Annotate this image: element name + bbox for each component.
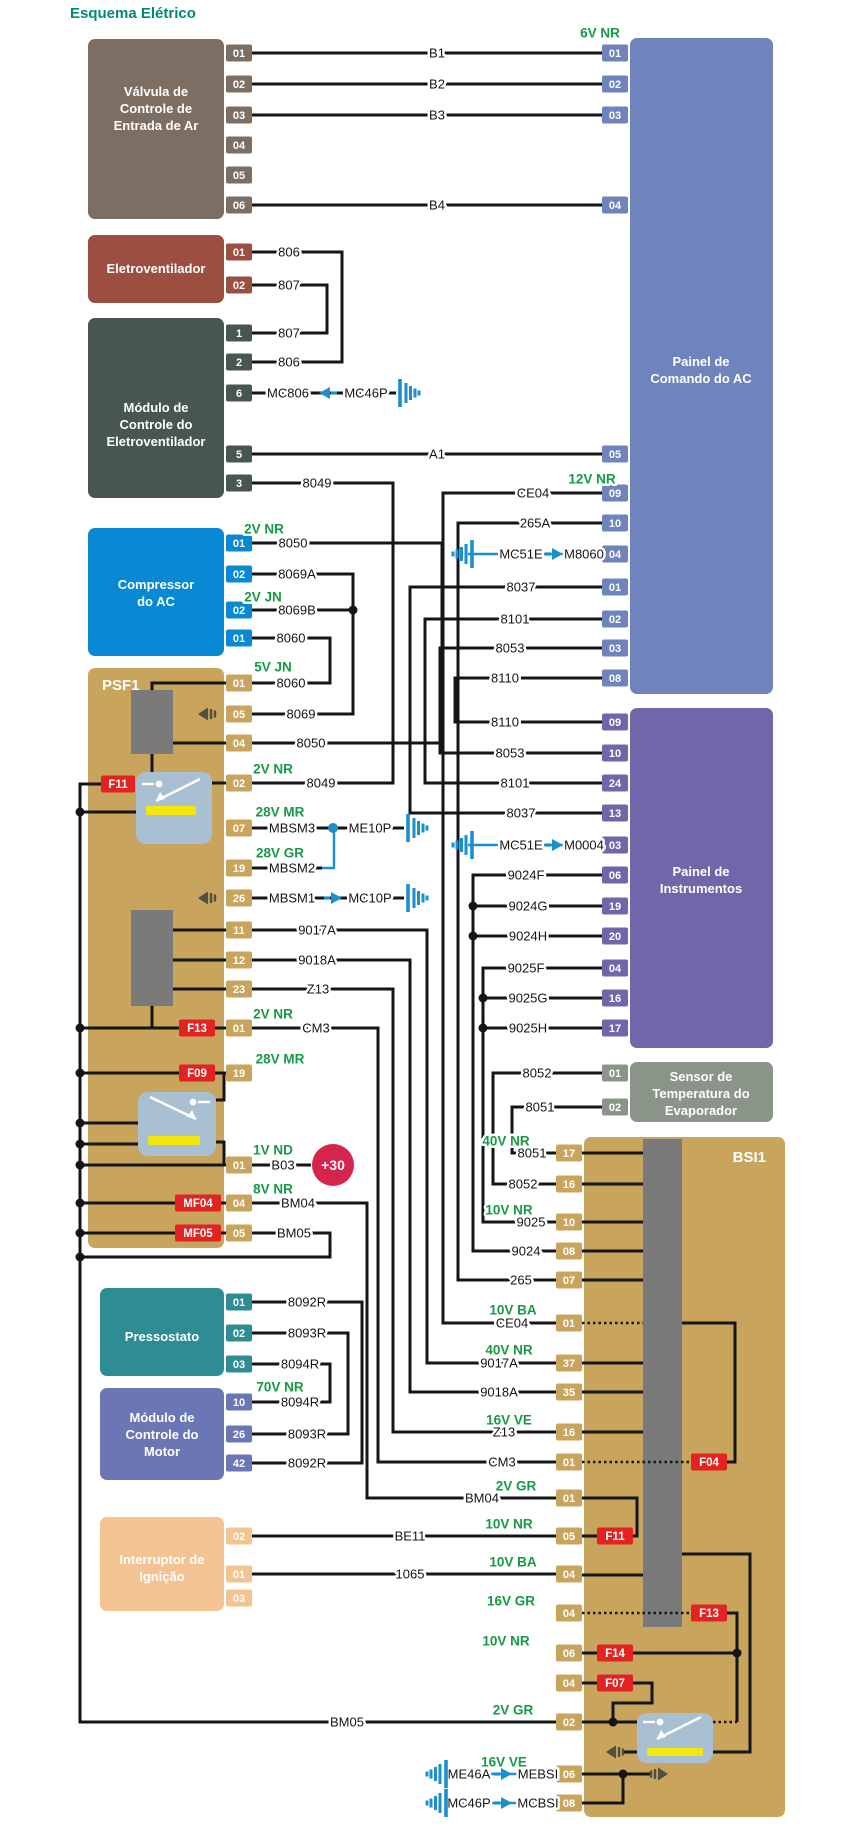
pin-number: 01 — [609, 48, 621, 60]
component-box-label: Eletroventilador — [107, 434, 206, 449]
wire-label: 8050 — [279, 536, 308, 551]
fuse-label: F11 — [605, 1531, 625, 1543]
splice-junction-dot — [328, 823, 338, 833]
pin-number: 03 — [233, 1359, 245, 1371]
flow-arrow-icon — [552, 839, 563, 851]
component-box-label: BSI1 — [733, 1149, 766, 1166]
pin-number: 01 — [233, 538, 245, 550]
wire-label: 8110 — [491, 715, 519, 730]
pin-number: 01 — [563, 1318, 575, 1330]
voltage-color-label: 28V MR — [256, 805, 305, 820]
component-box-label: Eletroventilador — [107, 261, 206, 276]
voltage-color-label: 10V NR — [482, 1634, 530, 1649]
pin-number: 03 — [233, 1593, 245, 1605]
pin-number: 05 — [609, 449, 621, 461]
wire-label: MC51E — [499, 547, 543, 562]
voltage-color-label: 16V VE — [481, 1755, 527, 1770]
ground-icon — [406, 884, 410, 912]
pin-number: 01 — [563, 1493, 575, 1505]
junction-dot — [76, 808, 85, 817]
ground-icon-bar — [434, 1796, 437, 1810]
pin-number: 01 — [233, 633, 245, 645]
wire-label: 8049 — [307, 776, 336, 791]
wire-label: MC51E — [499, 838, 543, 853]
ground-icon-bar — [417, 821, 420, 835]
wire-label: BE11 — [395, 1529, 426, 1544]
wire-label: CM3 — [302, 1021, 329, 1036]
fuse-label: F11 — [108, 779, 128, 791]
component-box-label: Entrada de Ar — [114, 118, 199, 133]
pin-number: 02 — [233, 605, 245, 617]
wire-label: CE04 — [517, 486, 550, 501]
shield-arrow-bar — [650, 1771, 652, 1778]
wire-label: CM3 — [488, 1455, 515, 1470]
ground-icon-bar — [418, 391, 421, 396]
pin-number: 16 — [563, 1179, 575, 1191]
wire-label: 8092R — [288, 1456, 326, 1471]
ground-icon-bar — [456, 550, 459, 559]
wire-label: 9017A — [480, 1356, 518, 1371]
ground-icon-bar — [465, 835, 468, 855]
wire-label: B03 — [271, 1158, 294, 1173]
voltage-color-label: 10V BA — [489, 1303, 537, 1318]
voltage-color-label: 12V NR — [568, 472, 616, 487]
wire-label: 8050 — [297, 736, 326, 751]
wire-label: CE04 — [496, 1316, 529, 1331]
ground-icon-bar — [456, 841, 459, 850]
pin-number: 01 — [563, 1457, 575, 1469]
component-box-label: Temperatura do — [652, 1086, 749, 1101]
voltage-color-label: 2V NR — [244, 522, 284, 537]
component-box-label: Válvula de — [124, 84, 188, 99]
junction-dot — [76, 1069, 85, 1078]
component-box-label: Compressor — [118, 577, 195, 592]
voltage-color-label: 5V JN — [254, 660, 292, 675]
relay-pivot-dot — [190, 1099, 197, 1106]
pin-number: 16 — [563, 1427, 575, 1439]
fuse-label: F07 — [605, 1678, 625, 1690]
fuse-label: F13 — [699, 1608, 719, 1620]
pin-number: 13 — [609, 808, 621, 820]
pin-number: 01 — [233, 678, 245, 690]
wire-label: 8069B — [278, 603, 316, 618]
pin-number: 06 — [609, 870, 621, 882]
flow-arrow-icon — [331, 892, 342, 904]
wire-label: Z13 — [307, 982, 329, 997]
pin-number: 09 — [609, 488, 621, 500]
ground-icon-bar — [422, 824, 425, 833]
component-box-label: Sensor de — [670, 1069, 733, 1084]
voltage-color-label: 10V NR — [485, 1517, 533, 1532]
ground-icon-bar — [426, 1801, 429, 1806]
pin-number: 04 — [233, 140, 246, 152]
wire-label: 8101 — [501, 612, 530, 627]
pin-number: 17 — [609, 1023, 621, 1035]
wire-label: 806 — [278, 355, 300, 370]
wire-label: 8037 — [507, 806, 536, 821]
wire-label: 9018A — [298, 953, 336, 968]
pin-number: 16 — [609, 993, 621, 1005]
pin-number: 6 — [236, 388, 242, 400]
junction-dot — [469, 932, 478, 941]
pin-number: 02 — [609, 79, 621, 91]
ground-icon-bar — [422, 894, 425, 903]
wire-label: MC46P — [344, 386, 387, 401]
component-box-label: Instrumentos — [660, 881, 742, 896]
component-box-label: Ignição — [139, 1569, 185, 1584]
pin-number: 04 — [609, 200, 622, 212]
pin-number: 42 — [233, 1458, 245, 1470]
shield-arrow-bar — [210, 893, 212, 903]
pin-number: 04 — [609, 549, 622, 561]
pin-number: 01 — [233, 1569, 245, 1581]
voltage-color-label: 16V VE — [486, 1413, 532, 1428]
shield-arrow-bar — [214, 895, 216, 902]
flow-arrow-icon — [501, 1797, 512, 1809]
ground-icon-bar — [430, 1799, 433, 1808]
pin-number: 5 — [236, 449, 242, 461]
wire-label: B2 — [429, 77, 445, 92]
pin-number: 06 — [563, 1769, 575, 1781]
flow-arrow-tail — [331, 391, 337, 394]
wire-label: MBSM2 — [269, 861, 315, 876]
voltage-color-label: 10V NR — [485, 1203, 533, 1218]
pin-number: 10 — [233, 1397, 245, 1409]
component-box-label: Comando do AC — [650, 371, 752, 386]
junction-dot — [76, 1119, 85, 1128]
junction-dot — [76, 1253, 85, 1262]
junction-dot — [479, 994, 488, 1003]
pin-number: 01 — [233, 1160, 245, 1172]
pin-number: 01 — [233, 48, 245, 60]
ground-icon-bar — [417, 891, 420, 905]
component-box-label: Motor — [144, 1444, 180, 1459]
wire-label: 807 — [278, 326, 300, 341]
ground-icon-bar — [460, 838, 463, 852]
pin-number: 10 — [609, 748, 621, 760]
pin-number: 01 — [233, 1023, 245, 1035]
ground-icon — [406, 814, 410, 842]
wire-label: BM05 — [277, 1226, 311, 1241]
pin-number: 06 — [233, 200, 245, 212]
pin-number: 02 — [233, 569, 245, 581]
internal-module-rect — [131, 910, 173, 1006]
ground-icon-bar — [452, 843, 455, 848]
internal-module-rect — [643, 1139, 682, 1627]
pin-number: 02 — [233, 79, 245, 91]
wire-label: B4 — [429, 198, 445, 213]
pin-number: 05 — [233, 170, 245, 182]
shield-arrow-bar — [210, 709, 212, 719]
ground-icon-bar — [434, 1767, 437, 1781]
fuse-label: MF05 — [183, 1228, 213, 1240]
wire-label: 8049 — [303, 476, 332, 491]
wire-label: M8060 — [564, 547, 604, 562]
flow-arrow-tail — [494, 1772, 500, 1775]
voltage-color-label: 10V BA — [489, 1555, 537, 1570]
wire-blue — [322, 830, 334, 868]
ground-icon-bar — [439, 1764, 442, 1784]
shield-arrow-bar — [618, 1747, 620, 1757]
wire-label: 9018A — [480, 1385, 518, 1400]
wire-label: MBSM1 — [269, 891, 315, 906]
junction-dot — [76, 1161, 85, 1170]
pin-number: 01 — [609, 582, 621, 594]
pin-number: 02 — [609, 614, 621, 626]
pin-number: 01 — [233, 1297, 245, 1309]
component-box-label: Controle do — [126, 1427, 199, 1442]
page-title: Esquema Elétrico — [70, 5, 196, 22]
wire-label: A1 — [429, 447, 445, 462]
flow-arrow-tail — [324, 896, 330, 899]
fuse-label: F04 — [699, 1457, 719, 1469]
fuse-label: F09 — [187, 1068, 207, 1080]
wire-label: BM04 — [465, 1491, 499, 1506]
flow-arrow-tail — [494, 1801, 500, 1804]
wire-label: BM05 — [330, 1715, 364, 1730]
wire-label: 9024H — [509, 929, 547, 944]
wire-label: M0004 — [564, 838, 604, 853]
pin-number: 05 — [233, 709, 245, 721]
wire-label: 1065 — [396, 1567, 425, 1582]
junction-dot — [76, 1229, 85, 1238]
pin-number: 04 — [609, 963, 622, 975]
pin-number: 05 — [233, 1228, 245, 1240]
wire-label: 8093R — [288, 1326, 326, 1341]
voltage-color-label: 28V GR — [256, 846, 304, 861]
voltage-color-label: 2V GR — [493, 1703, 534, 1718]
pin-number: 11 — [233, 925, 245, 937]
wire-label: 8053 — [496, 746, 525, 761]
flow-arrow-icon — [319, 387, 330, 399]
ground-icon-bar — [430, 1770, 433, 1779]
wire-label: 8094R — [281, 1357, 319, 1372]
pin-number: 07 — [563, 1275, 575, 1287]
wire-label: 9024G — [508, 899, 547, 914]
pin-number: 26 — [233, 893, 245, 905]
wire-label: MC806 — [267, 386, 309, 401]
pin-number: 08 — [609, 673, 621, 685]
component-box-label: do AC — [137, 594, 175, 609]
component-box-label: Módulo de — [130, 1410, 195, 1425]
pin-number: 1 — [236, 328, 242, 340]
pin-number: 2 — [236, 357, 242, 369]
wire-label: 9025H — [509, 1021, 547, 1036]
pin-number: 12 — [233, 955, 245, 967]
wiring-diagram-page: Válvula deControle deEntrada de ArEletro… — [0, 0, 864, 1848]
wire-label: 8052 — [509, 1177, 538, 1192]
ground-icon — [470, 540, 474, 568]
ground-icon-bar — [426, 826, 429, 831]
component-box-label: Interruptor de — [119, 1552, 204, 1567]
voltage-color-label: 16V GR — [487, 1594, 535, 1609]
pin-number: 03 — [233, 110, 245, 122]
ground-icon-bar — [460, 547, 463, 561]
voltage-color-label: 2V NR — [253, 762, 293, 777]
wiring-diagram: Válvula deControle deEntrada de ArEletro… — [0, 0, 864, 1848]
pin-number: 02 — [233, 1531, 245, 1543]
ground-icon-bar — [414, 389, 417, 398]
ground-icon-bar — [413, 818, 416, 838]
ground-icon — [444, 1760, 448, 1788]
fuse-label: F14 — [605, 1648, 625, 1660]
pin-number: 01 — [609, 1068, 621, 1080]
pin-number: 10 — [563, 1217, 575, 1229]
pin-number: 03 — [609, 643, 621, 655]
wire-label: 8101 — [501, 776, 530, 791]
component-box-label: Painel de — [672, 354, 729, 369]
wire-label: 8060 — [277, 676, 306, 691]
wire-label: 8069 — [287, 707, 316, 722]
wire-label: ME10P — [349, 821, 392, 836]
ground-icon-bar — [426, 1772, 429, 1777]
pin-number: 37 — [563, 1358, 575, 1370]
component-box-label: Painel de — [672, 864, 729, 879]
relay-pivot-dot — [657, 1719, 664, 1726]
pin-number: 02 — [233, 1328, 245, 1340]
voltage-color-label: 6V NR — [580, 26, 620, 41]
wire-label: MCBSI — [517, 1796, 558, 1811]
voltage-color-label: 40V NR — [482, 1134, 530, 1149]
ground-icon-bar — [452, 552, 455, 557]
pin-number: 20 — [609, 931, 621, 943]
wire-label: 265 — [510, 1273, 532, 1288]
ground-icon-bar — [405, 383, 408, 403]
relay-fuse-bar — [647, 1748, 703, 1756]
wire-label: 8053 — [496, 641, 525, 656]
voltage-color-label: 28V MR — [256, 1052, 305, 1067]
junction-dot — [479, 1024, 488, 1033]
component-box-compressor-do-ac — [88, 528, 224, 656]
wire-label: BM04 — [281, 1196, 315, 1211]
junction-dot — [469, 902, 478, 911]
pin-number: 10 — [609, 518, 621, 530]
junction-dot — [76, 1199, 85, 1208]
wire-label: MC10P — [348, 891, 391, 906]
voltage-color-label: 2V NR — [253, 1007, 293, 1022]
wire-label: 9025F — [508, 961, 545, 976]
pin-number: 02 — [609, 1102, 621, 1114]
pin-number: 01 — [233, 247, 245, 259]
wire-label: 8052 — [523, 1066, 552, 1081]
pin-number: 3 — [236, 478, 242, 490]
ground-icon — [444, 1789, 448, 1817]
flow-arrow-icon — [552, 548, 563, 560]
relay-pivot-dot — [156, 781, 163, 788]
pin-number: 03 — [609, 840, 621, 852]
wire-label: 9024 — [512, 1244, 541, 1259]
pin-number: 19 — [233, 863, 245, 875]
junction-dot — [609, 1718, 618, 1727]
voltage-color-label: 40V NR — [485, 1343, 533, 1358]
pin-number: 06 — [563, 1648, 575, 1660]
ground-icon-bar — [413, 888, 416, 908]
fuse-label: F13 — [187, 1023, 207, 1035]
voltage-color-label: 2V GR — [496, 1479, 537, 1494]
junction-dot — [619, 1770, 628, 1779]
pin-number: 02 — [563, 1717, 575, 1729]
pin-number: 35 — [563, 1387, 575, 1399]
flow-arrow-tail — [545, 843, 551, 846]
pin-number: 04 — [563, 1608, 576, 1620]
wire — [455, 678, 602, 722]
shield-arrow-bar — [214, 711, 216, 718]
ground-icon-bar — [426, 896, 429, 901]
wire-label: 8051 — [526, 1100, 555, 1115]
wire-label: 265A — [520, 516, 551, 531]
ground-icon-bar — [439, 1793, 442, 1813]
component-box-label: Controle de — [120, 101, 192, 116]
pin-number: 19 — [609, 901, 621, 913]
flow-arrow-icon — [501, 1768, 512, 1780]
junction-dot — [76, 1140, 85, 1149]
internal-module-rect — [131, 690, 173, 754]
wire-label: 8093R — [288, 1427, 326, 1442]
ground-icon — [470, 831, 474, 859]
component-box-label: Pressostato — [125, 1329, 199, 1344]
component-box-label: Controle do — [120, 417, 193, 432]
wire-label: 8094R — [281, 1395, 319, 1410]
wire-label: B1 — [429, 46, 445, 61]
junction-dot — [76, 1024, 85, 1033]
fuse-label: MF04 — [183, 1198, 213, 1210]
wire-label: MBSM3 — [269, 821, 315, 836]
wire-label: 8110 — [491, 671, 519, 686]
junction-dot — [733, 1649, 742, 1658]
wire-label: 9025G — [508, 991, 547, 1006]
component-box-label: Módulo de — [124, 400, 189, 415]
pin-number: 23 — [233, 984, 245, 996]
pin-number: 26 — [233, 1429, 245, 1441]
pin-number: 04 — [233, 1198, 246, 1210]
relay-fuse-bar — [148, 1136, 200, 1145]
wire-label: 8069A — [278, 567, 316, 582]
junction-dot — [349, 606, 358, 615]
pin-number: 04 — [233, 738, 246, 750]
relay-fuse-bar — [146, 806, 196, 815]
ground-icon — [398, 379, 402, 407]
wire-label: 9017A — [298, 923, 336, 938]
ground-icon-bar — [465, 544, 468, 564]
wire-label: MC46P — [447, 1796, 490, 1811]
pin-number: 08 — [563, 1246, 575, 1258]
pin-number: 24 — [609, 778, 622, 790]
pin-number: 05 — [563, 1531, 575, 1543]
pin-number: 04 — [563, 1678, 576, 1690]
plus30-label: +30 — [321, 1157, 345, 1173]
voltage-color-label: 1V ND — [253, 1143, 293, 1158]
flow-arrow-tail — [545, 552, 551, 555]
pin-number: 04 — [563, 1569, 576, 1581]
wire-label: 807 — [278, 278, 300, 293]
wire-label: 8060 — [277, 631, 306, 646]
wire-label: 8092R — [288, 1295, 326, 1310]
pin-number: 19 — [233, 1068, 245, 1080]
wire-label: 8037 — [507, 580, 536, 595]
wire-label: 9024F — [508, 868, 545, 883]
shield-arrow-bar — [622, 1749, 624, 1756]
voltage-color-label: 2V JN — [244, 590, 282, 605]
ground-icon-bar — [409, 386, 412, 400]
voltage-color-label: 8V NR — [253, 1182, 293, 1197]
shield-arrow-bar — [654, 1769, 656, 1779]
pin-number: 08 — [563, 1798, 575, 1810]
pin-number: 09 — [609, 717, 621, 729]
pin-number: 02 — [233, 280, 245, 292]
pin-number: 17 — [563, 1148, 575, 1160]
wire-label: B3 — [429, 108, 445, 123]
voltage-color-label: 70V NR — [256, 1380, 304, 1395]
